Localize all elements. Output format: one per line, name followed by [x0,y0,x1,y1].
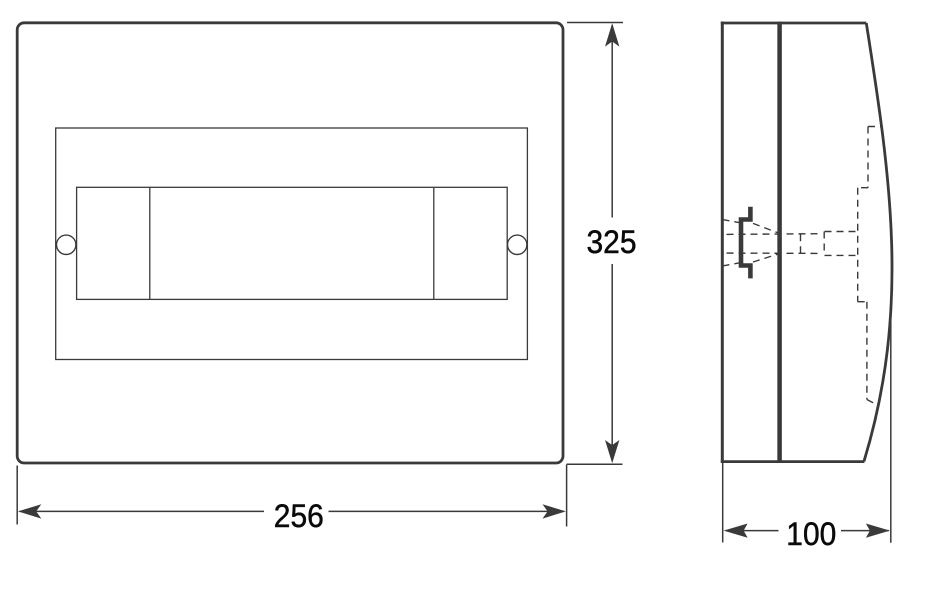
svg-text:256: 256 [274,498,324,534]
svg-text:100: 100 [786,516,836,552]
svg-text:325: 325 [587,224,637,260]
